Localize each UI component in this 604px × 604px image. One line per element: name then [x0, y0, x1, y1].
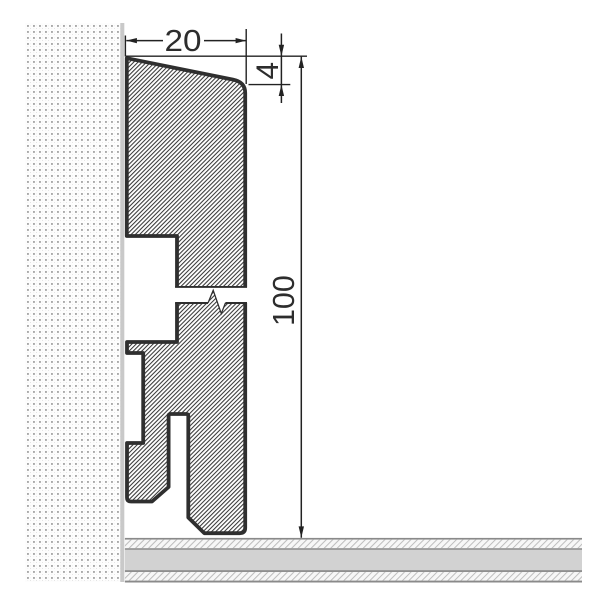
svg-text:20: 20	[165, 23, 202, 58]
svg-text:4: 4	[249, 62, 285, 80]
svg-text:100: 100	[267, 275, 301, 326]
